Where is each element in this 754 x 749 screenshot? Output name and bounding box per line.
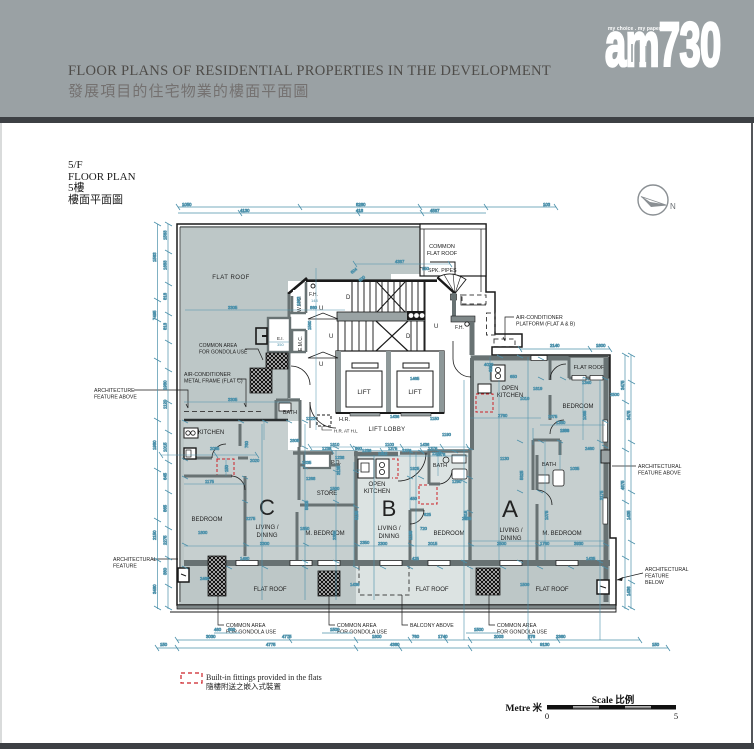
svg-text:1465: 1465: [410, 376, 420, 381]
svg-text:1683: 1683: [163, 260, 168, 270]
svg-text:3475: 3475: [626, 410, 631, 420]
svg-text:AIR-CONDITIONER: AIR-CONDITIONER: [516, 315, 563, 321]
svg-text:3135: 3135: [336, 465, 341, 475]
svg-text:625: 625: [424, 512, 432, 517]
svg-text:2350: 2350: [360, 540, 370, 545]
svg-text:LIFT LOBBY: LIFT LOBBY: [369, 427, 406, 433]
svg-text:5: 5: [674, 711, 678, 721]
svg-text:645: 645: [163, 472, 168, 480]
svg-text:1903: 1903: [296, 296, 301, 306]
svg-text:1050: 1050: [182, 202, 192, 207]
svg-text:SPK. PIPES: SPK. PIPES: [428, 268, 457, 274]
svg-text:ARCHITECTURAL: ARCHITECTURAL: [638, 464, 682, 470]
svg-text:425: 425: [412, 556, 420, 561]
svg-text:150: 150: [652, 642, 660, 647]
svg-text:STORE: STORE: [317, 491, 338, 497]
svg-text:1810: 1810: [330, 442, 340, 447]
svg-text:LIFT: LIFT: [408, 389, 421, 396]
svg-text:1378: 1378: [436, 452, 446, 457]
svg-text:380: 380: [163, 567, 168, 575]
svg-text:4387: 4387: [395, 259, 405, 264]
svg-text:720: 720: [420, 526, 428, 531]
svg-text:2300: 2300: [378, 541, 388, 546]
svg-text:M. BEDROOM: M. BEDROOM: [542, 531, 581, 537]
svg-text:1065: 1065: [582, 410, 587, 420]
svg-text:4587: 4587: [430, 208, 440, 213]
svg-text:FEATURE: FEATURE: [113, 564, 137, 570]
svg-text:1740: 1740: [438, 634, 448, 639]
svg-text:1323: 1323: [306, 416, 316, 421]
svg-text:460: 460: [214, 627, 222, 632]
svg-text:A: A: [502, 496, 518, 523]
svg-text:1340: 1340: [582, 380, 592, 385]
svg-text:103: 103: [543, 202, 551, 207]
svg-text:1800: 1800: [372, 634, 382, 639]
svg-text:1015: 1015: [163, 442, 168, 452]
svg-text:1850: 1850: [300, 526, 310, 531]
svg-text:4380: 4380: [390, 642, 400, 647]
svg-text:C: C: [259, 495, 275, 520]
svg-text:D: D: [346, 295, 351, 301]
svg-text:1819: 1819: [533, 386, 543, 391]
svg-text:H.R. AT H.L: H.R. AT H.L: [334, 429, 358, 434]
svg-text:418: 418: [356, 208, 364, 213]
svg-text:3305: 3305: [228, 305, 238, 310]
svg-text:650: 650: [510, 374, 518, 379]
svg-text:3030: 3030: [206, 634, 216, 639]
svg-text:COMMON: COMMON: [429, 244, 455, 250]
svg-text:5825: 5825: [304, 500, 309, 510]
svg-text:3300: 3300: [260, 541, 270, 546]
svg-text:FLAT ROOF: FLAT ROOF: [427, 251, 458, 257]
svg-text:1075: 1075: [544, 510, 549, 520]
svg-text:2275: 2275: [246, 516, 256, 521]
svg-text:150: 150: [224, 464, 229, 472]
svg-text:1800: 1800: [596, 343, 606, 348]
svg-text:878: 878: [528, 634, 536, 639]
svg-text:1500: 1500: [520, 582, 530, 587]
svg-text:3460: 3460: [152, 584, 157, 594]
svg-text:N: N: [670, 202, 676, 211]
svg-text:BEDROOM: BEDROOM: [433, 531, 464, 537]
svg-text:3135: 3135: [354, 510, 359, 520]
svg-text:KITCHEN: KITCHEN: [364, 489, 390, 495]
svg-text:1563: 1563: [163, 230, 168, 240]
svg-text:3305: 3305: [228, 397, 238, 402]
svg-text:1150: 1150: [430, 416, 440, 421]
svg-text:1130: 1130: [500, 456, 510, 461]
svg-text:1500: 1500: [474, 627, 484, 632]
svg-text:2500: 2500: [497, 541, 507, 546]
svg-text:760: 760: [412, 634, 420, 639]
svg-text:350: 350: [277, 342, 284, 347]
svg-text:1120: 1120: [163, 399, 168, 409]
svg-text:U: U: [434, 324, 438, 330]
svg-text:1268: 1268: [306, 476, 316, 481]
svg-text:METAL FRAME (FLAT C): METAL FRAME (FLAT C): [184, 379, 243, 385]
svg-text:2805: 2805: [290, 438, 300, 443]
svg-text:BATH: BATH: [542, 462, 556, 468]
svg-text:FEATURE ABOVE: FEATURE ABOVE: [638, 471, 681, 477]
svg-text:BEDROOM: BEDROOM: [562, 404, 593, 410]
svg-text:1380: 1380: [556, 420, 566, 425]
svg-text:Scale 比例: Scale 比例: [592, 694, 634, 706]
svg-text:1810: 1810: [378, 451, 388, 456]
svg-text:150: 150: [422, 266, 430, 271]
svg-text:LIVING /: LIVING /: [255, 525, 278, 531]
svg-text:OPEN: OPEN: [501, 386, 518, 392]
svg-text:1436: 1436: [626, 586, 631, 596]
svg-text:BALCONY ABOVE: BALCONY ABOVE: [410, 623, 454, 629]
svg-text:BATH: BATH: [283, 410, 297, 416]
svg-text:1800: 1800: [198, 530, 208, 535]
svg-text:2460: 2460: [200, 576, 210, 581]
svg-text:865: 865: [163, 504, 168, 512]
svg-text:4875: 4875: [620, 480, 625, 490]
svg-text:818: 818: [163, 292, 168, 300]
svg-text:3930: 3930: [574, 541, 584, 546]
svg-text:4130: 4130: [240, 208, 250, 213]
svg-text:FEATURE: FEATURE: [645, 574, 669, 580]
svg-text:1563: 1563: [152, 252, 157, 262]
svg-text:1500: 1500: [330, 627, 340, 632]
svg-text:600: 600: [228, 627, 236, 632]
svg-text:4815: 4815: [463, 510, 468, 520]
svg-text:BEDROOM: BEDROOM: [191, 517, 222, 523]
svg-text:AIR-CONDITIONER: AIR-CONDITIONER: [184, 372, 231, 378]
svg-text:1490: 1490: [240, 556, 250, 561]
svg-text:KITCHEN: KITCHEN: [198, 430, 224, 436]
svg-text:860: 860: [310, 305, 318, 310]
svg-text:FLAT ROOF: FLAT ROOF: [253, 587, 286, 593]
svg-text:1980: 1980: [152, 440, 157, 450]
svg-text:PLATFORM (FLAT A & B): PLATFORM (FLAT A & B): [516, 322, 575, 328]
svg-text:H.R.: H.R.: [339, 417, 350, 423]
svg-text:1238: 1238: [335, 455, 345, 460]
svg-text:LIVING /: LIVING /: [377, 526, 400, 532]
svg-text:2275: 2275: [163, 535, 168, 545]
svg-text:2350: 2350: [332, 530, 337, 540]
svg-text:150: 150: [160, 642, 168, 647]
svg-text:LIVING /: LIVING /: [499, 528, 522, 534]
svg-text:620: 620: [488, 364, 493, 372]
svg-text:900: 900: [355, 446, 363, 451]
svg-text:COMMON AREA: COMMON AREA: [497, 623, 537, 629]
svg-text:FLAT ROOF: FLAT ROOF: [415, 587, 448, 593]
svg-text:2020: 2020: [250, 458, 260, 463]
svg-text:DINING: DINING: [379, 534, 400, 540]
svg-text:M. BEDROOM: M. BEDROOM: [305, 531, 344, 537]
svg-text:LIFT: LIFT: [357, 389, 370, 396]
svg-text:U: U: [319, 306, 323, 312]
svg-text:4775: 4775: [266, 642, 276, 647]
svg-text:隨樓附送之嵌入式裝置: 隨樓附送之嵌入式裝置: [206, 681, 281, 691]
svg-text:8280: 8280: [356, 202, 366, 207]
svg-text:1375: 1375: [388, 446, 398, 451]
svg-text:2500: 2500: [610, 392, 620, 397]
svg-text:OPEN: OPEN: [368, 482, 385, 488]
svg-text:0: 0: [545, 711, 549, 721]
svg-text:1500: 1500: [330, 486, 340, 491]
svg-text:3175: 3175: [599, 490, 604, 500]
svg-text:D: D: [406, 334, 411, 340]
svg-text:5825: 5825: [519, 470, 524, 480]
svg-text:2015: 2015: [428, 541, 438, 546]
svg-text:813: 813: [163, 322, 168, 330]
svg-text:1436: 1436: [350, 582, 360, 587]
svg-text:450: 450: [410, 496, 418, 501]
svg-text:COMMON AREA: COMMON AREA: [199, 343, 238, 349]
svg-text:2760: 2760: [498, 413, 508, 418]
svg-text:9130: 9130: [540, 642, 550, 647]
svg-text:760: 760: [244, 440, 249, 448]
svg-text:ARCHITECTURAL: ARCHITECTURAL: [645, 567, 689, 573]
svg-text:ARCHITECTURE: ARCHITECTURE: [94, 388, 135, 394]
svg-text:1376: 1376: [428, 446, 438, 451]
svg-text:U: U: [329, 334, 333, 340]
svg-text:1436: 1436: [560, 428, 570, 433]
svg-text:FOR GONDOLA USE: FOR GONDOLA USE: [497, 630, 548, 636]
svg-text:FEATURE ABOVE: FEATURE ABOVE: [94, 395, 137, 401]
svg-text:FLAT ROOF: FLAT ROOF: [574, 365, 605, 371]
svg-text:E.M.C.: E.M.C.: [298, 336, 304, 351]
svg-text:FLAT ROOF: FLAT ROOF: [212, 275, 250, 281]
svg-text:1435: 1435: [586, 556, 596, 561]
svg-text:7495: 7495: [152, 310, 157, 320]
svg-text:B: B: [382, 496, 397, 521]
svg-text:2140: 2140: [550, 343, 560, 348]
svg-text:1010: 1010: [520, 396, 530, 401]
svg-text:2135: 2135: [408, 530, 413, 540]
svg-text:1175: 1175: [205, 479, 215, 484]
svg-text:3475: 3475: [620, 380, 625, 390]
svg-text:2150: 2150: [152, 530, 157, 540]
svg-text:2035: 2035: [210, 446, 220, 451]
svg-text:FOR GONDOLA USE: FOR GONDOLA USE: [199, 350, 248, 356]
svg-text:1335: 1335: [302, 460, 312, 465]
svg-text:2360: 2360: [556, 634, 566, 639]
svg-text:ARCHITECTURAL: ARCHITECTURAL: [113, 557, 157, 563]
svg-text:Built-in fittings provided in: Built-in fittings provided in the flats: [206, 673, 322, 682]
svg-text:1435: 1435: [626, 510, 631, 520]
svg-text:2460: 2460: [585, 446, 595, 451]
svg-text:1980: 1980: [163, 380, 168, 390]
svg-text:148: 148: [311, 298, 318, 303]
svg-text:E.I.: E.I.: [277, 336, 284, 341]
svg-text:1560: 1560: [307, 320, 312, 330]
svg-text:F.H.: F.H.: [455, 325, 464, 331]
svg-text:Metre 米: Metre 米: [506, 702, 543, 714]
svg-text:BATH: BATH: [433, 463, 447, 469]
svg-text:4775: 4775: [282, 634, 292, 639]
svg-text:2003: 2003: [494, 634, 504, 639]
svg-text:1925: 1925: [410, 466, 420, 471]
svg-text:1035: 1035: [570, 466, 580, 471]
svg-text:1238: 1238: [322, 446, 332, 451]
svg-text:1290: 1290: [452, 479, 462, 484]
svg-text:1190: 1190: [442, 432, 452, 437]
svg-text:BELOW: BELOW: [645, 580, 664, 586]
svg-text:COMMON AREA: COMMON AREA: [337, 623, 377, 629]
svg-text:1075: 1075: [548, 414, 558, 419]
svg-text:FLAT ROOF: FLAT ROOF: [535, 587, 568, 593]
svg-text:1436: 1436: [390, 414, 400, 419]
svg-text:DINING: DINING: [257, 533, 278, 539]
svg-text:U: U: [319, 362, 323, 368]
